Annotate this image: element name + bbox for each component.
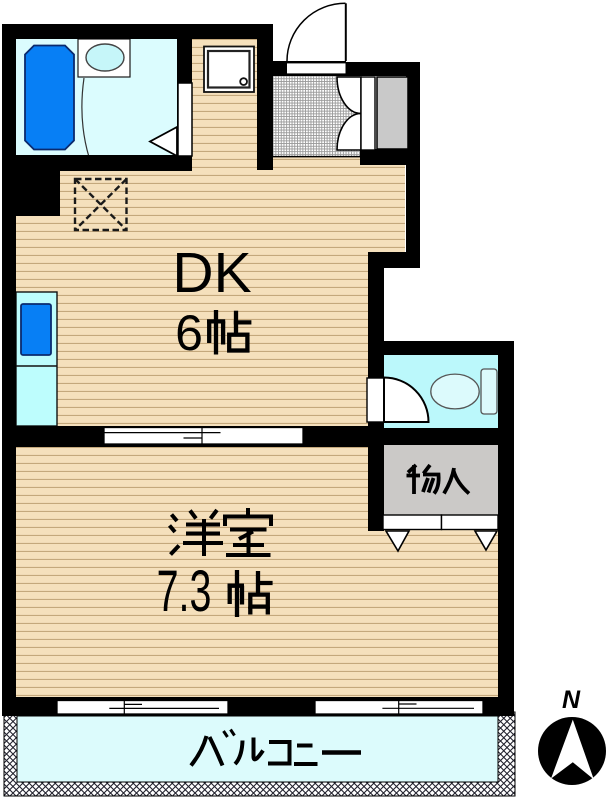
svg-text:DK: DK — [172, 241, 251, 305]
svg-text:N: N — [562, 686, 581, 714]
svg-text:7.3: 7.3 — [157, 558, 212, 623]
svg-text:6: 6 — [175, 305, 203, 361]
